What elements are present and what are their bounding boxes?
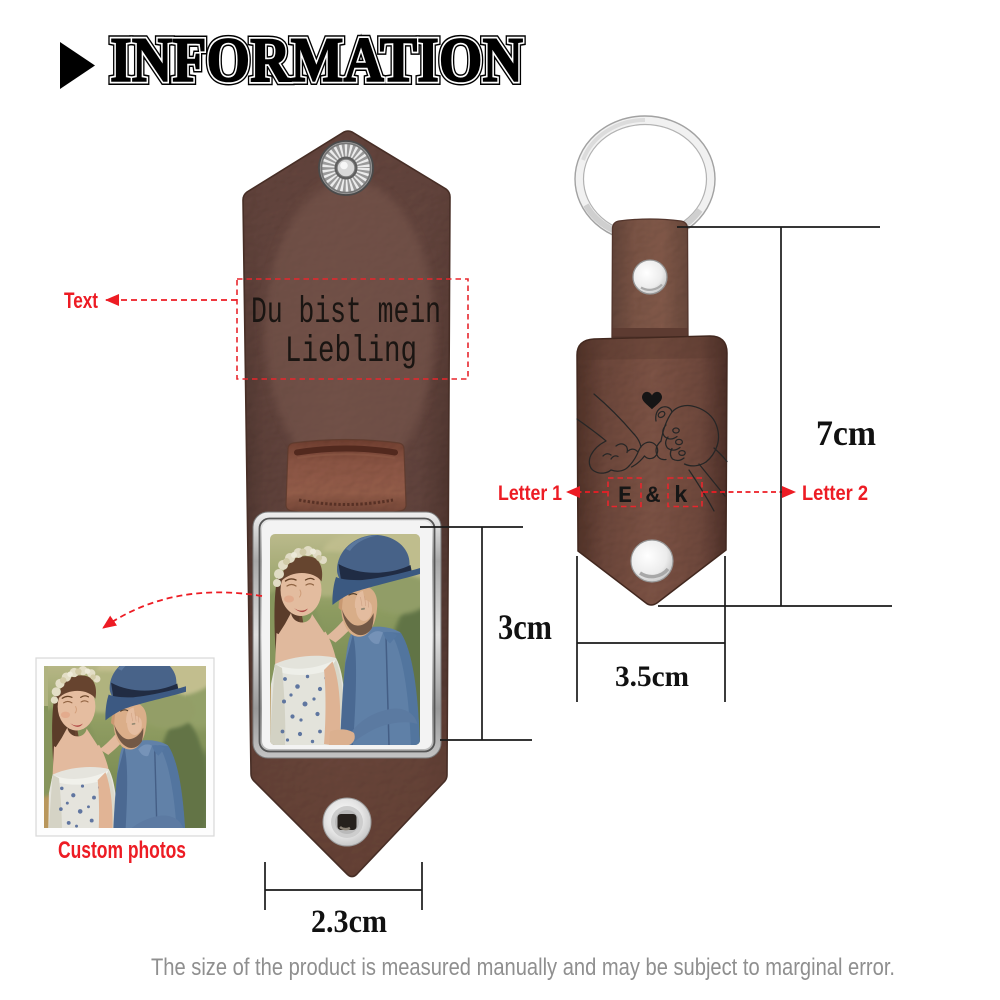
svg-text:The size of the product is mea: The size of the product is measured manu… xyxy=(151,954,895,981)
svg-text:Text: Text xyxy=(64,288,99,313)
svg-text:3cm: 3cm xyxy=(498,607,552,647)
svg-text:Du bist mein: Du bist mein xyxy=(251,292,441,334)
svg-text:Liebling: Liebling xyxy=(285,331,417,373)
svg-text:3.5cm: 3.5cm xyxy=(615,660,689,693)
svg-text:INFORMATION: INFORMATION xyxy=(110,25,523,95)
svg-text:Custom photos: Custom photos xyxy=(58,837,186,864)
svg-text:Letter 1: Letter 1 xyxy=(498,482,562,505)
svg-text:7cm: 7cm xyxy=(816,413,876,453)
svg-text:Letter 2: Letter 2 xyxy=(802,482,868,505)
svg-text:E & k: E & k xyxy=(618,483,688,509)
svg-text:2.3cm: 2.3cm xyxy=(311,904,387,940)
